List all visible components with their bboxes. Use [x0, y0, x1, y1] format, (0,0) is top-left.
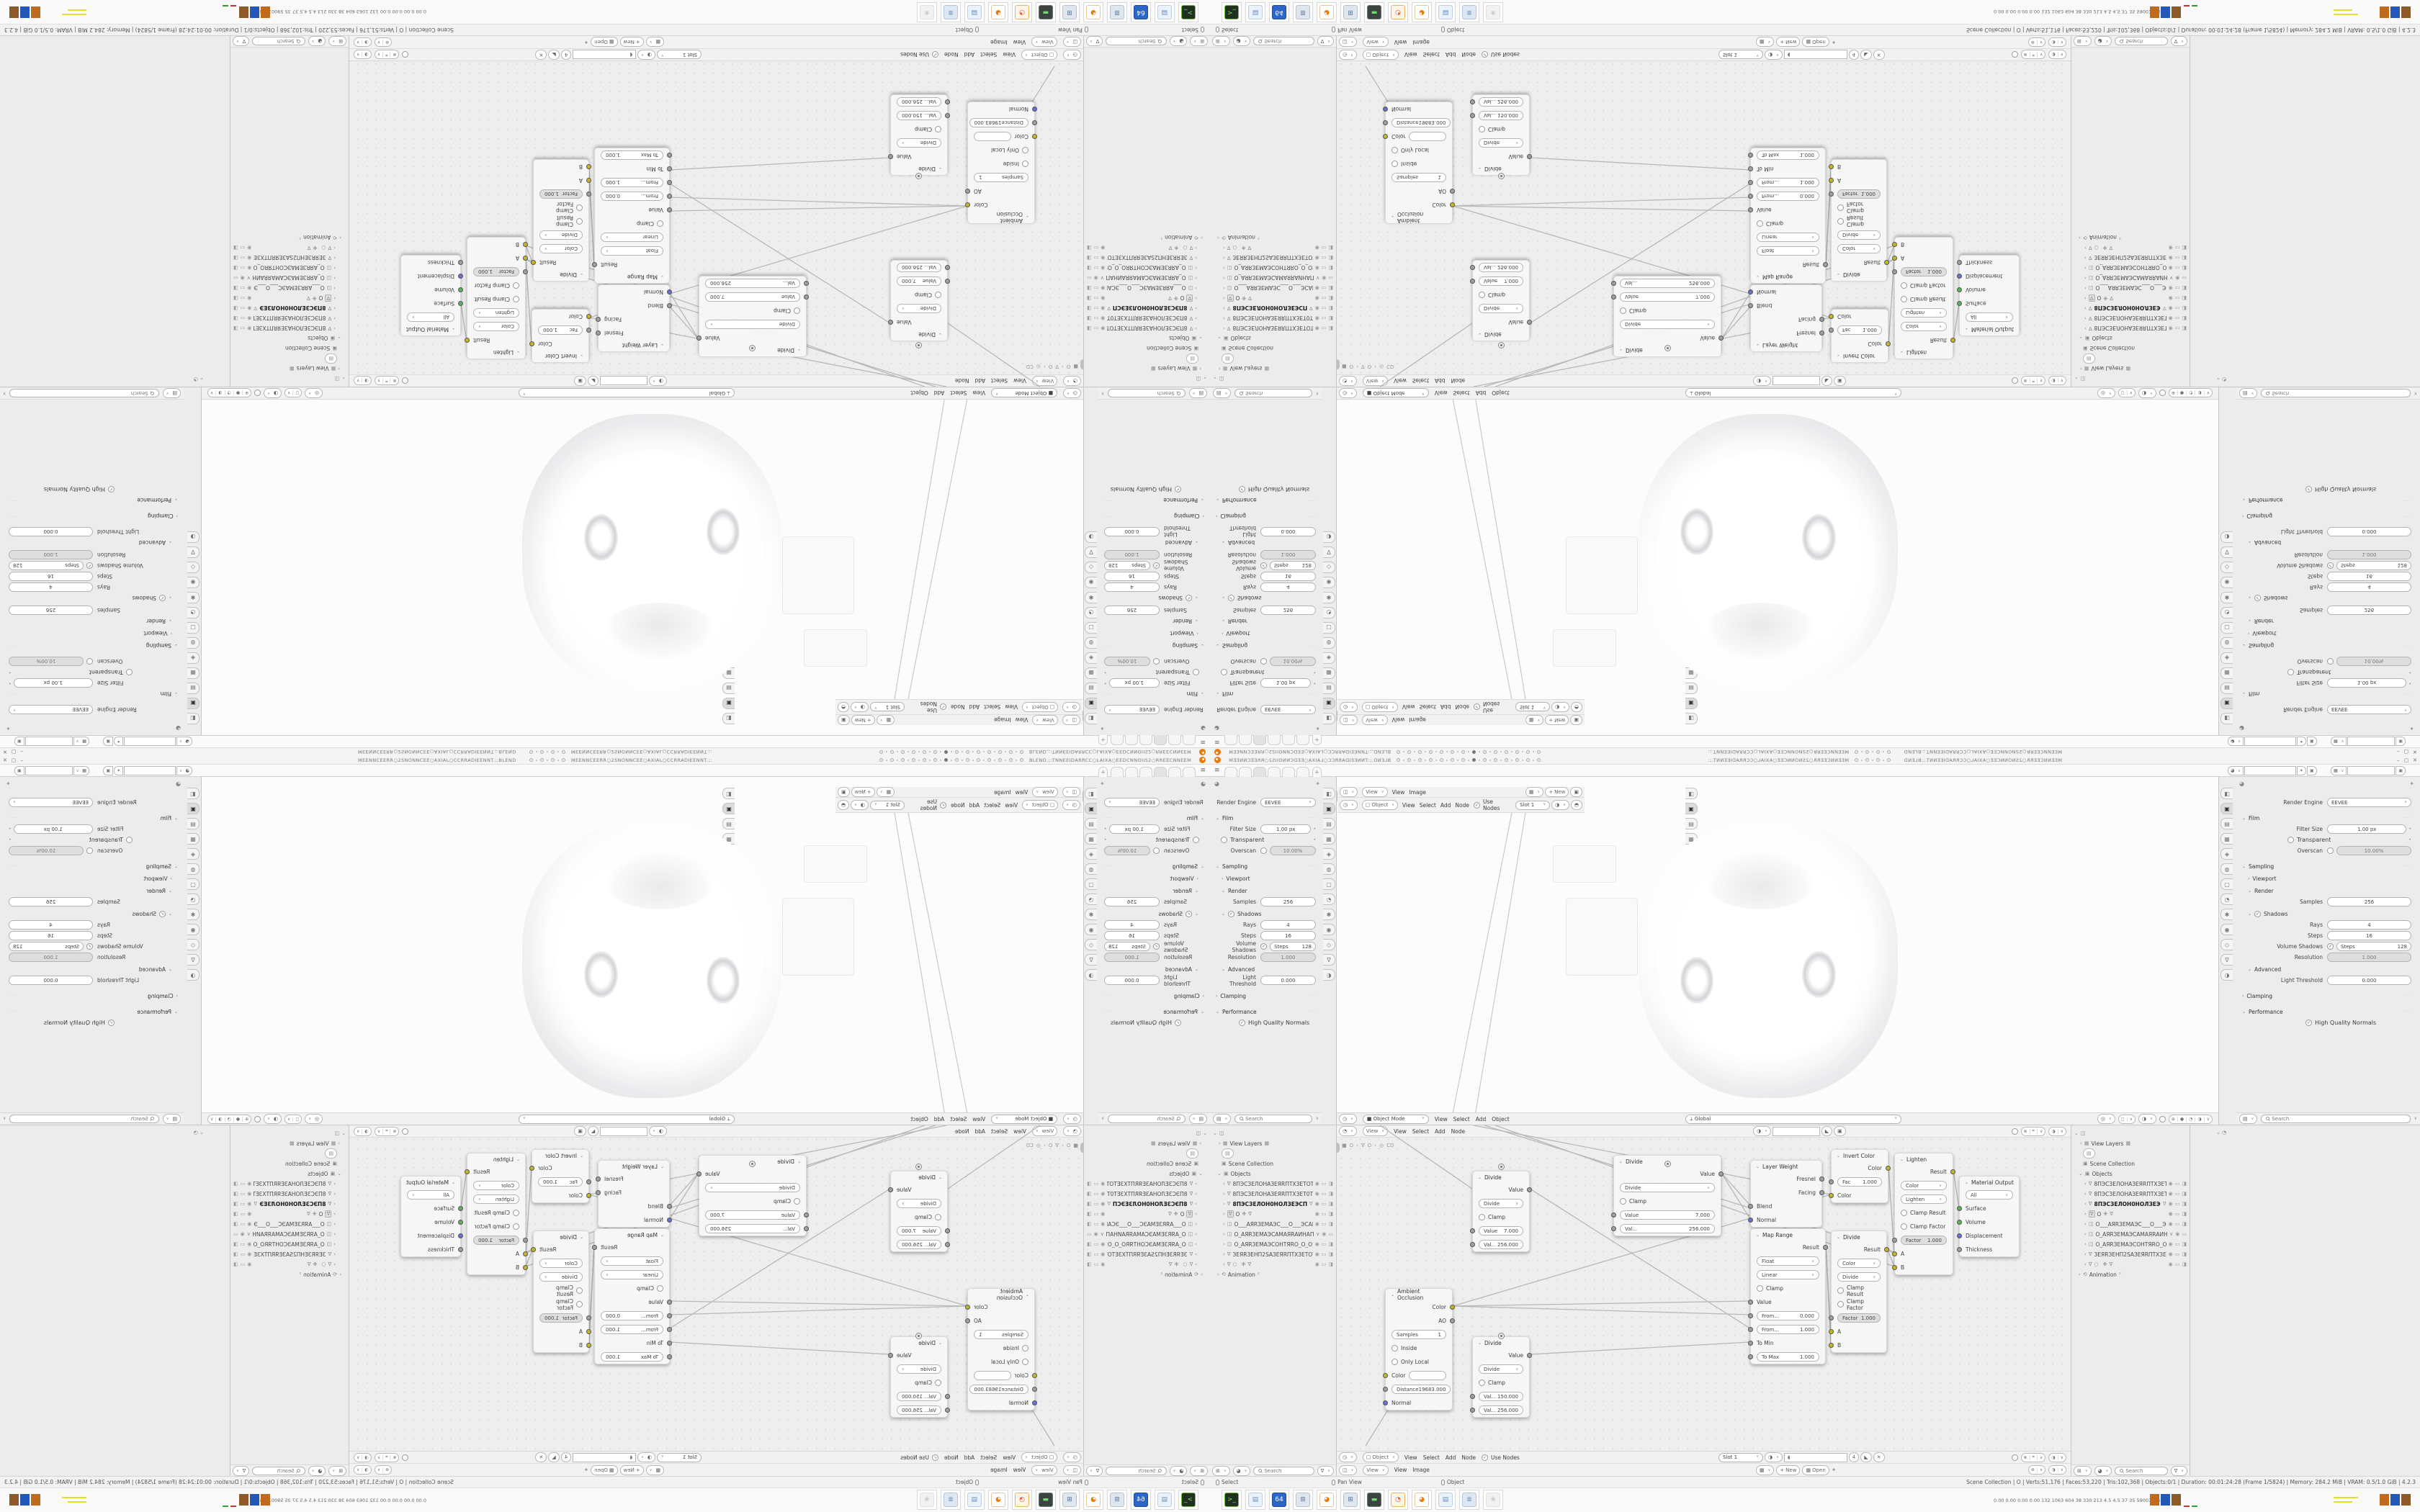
menu-view[interactable]: View [1435, 390, 1448, 397]
properties-tab-icon-3[interactable]: ▦ [187, 667, 200, 679]
node-toggle[interactable]: Clamp Result [1901, 1210, 1946, 1216]
editor-type-icon[interactable]: ◕ [1201, 725, 1206, 732]
node-select[interactable]: Divide∨ [539, 230, 583, 240]
monitor-icon[interactable]: ▭ [1322, 245, 1327, 251]
checkbox[interactable]: ✓ [1175, 1020, 1181, 1026]
value-field-filter-size[interactable]: 1.00 px [2327, 824, 2406, 834]
node-select[interactable]: Divide∨ [897, 304, 941, 313]
app-icon-disabled-app[interactable]: ❀ [917, 1490, 937, 1510]
viewlayer-browse-icon[interactable]: ▦∨ [2331, 737, 2347, 746]
eye-icon[interactable]: ◉ [2169, 1241, 2173, 1247]
node-toggle[interactable]: Clamp Factor [1901, 1223, 1945, 1230]
properties-tab-icon-3[interactable]: ▦ [1085, 667, 1097, 679]
camera-icon[interactable]: ◨ [1087, 255, 1092, 261]
new-image-button[interactable]: + New [1545, 787, 1569, 797]
node-select[interactable]: Divide∨ [1479, 138, 1523, 148]
eye-icon[interactable]: ◉ [247, 1261, 251, 1267]
node-socket-input[interactable] [1829, 1329, 1834, 1334]
node-value-field[interactable]: Value7.000 [897, 1226, 941, 1236]
workspace-tab[interactable] [1296, 767, 1309, 777]
chevron-down-icon[interactable]: ∨ [3, 1116, 6, 1121]
editor-type-dropdown[interactable]: ◫∨ [1340, 715, 1358, 725]
monitor-icon[interactable]: ▭ [241, 265, 246, 271]
restrict-icons[interactable]: ◉▭◨ [1087, 265, 1105, 271]
eye-icon[interactable]: ◉ [247, 1211, 251, 1217]
checkbox[interactable]: ✓ [2305, 486, 2312, 492]
section-header-performance[interactable]: ⌄Performance···· [2236, 495, 2417, 505]
material-users-count[interactable]: 4 [561, 50, 571, 60]
value-field-samples[interactable]: 256 [1104, 897, 1160, 906]
node-title[interactable]: ⌄Map Range [1751, 271, 1825, 283]
node-socket-input[interactable] [1892, 242, 1897, 247]
workspace-dot-icon[interactable] [1537, 758, 1541, 762]
menu-node[interactable]: Node [1455, 802, 1469, 809]
eye-icon[interactable]: ◉ [2169, 305, 2173, 311]
viewlayer-selector[interactable]: ▦∨ ▣ [14, 737, 89, 746]
camera-icon[interactable]: ◨ [1087, 1211, 1092, 1217]
editor-type-dropdown[interactable]: ◫∨ [1062, 715, 1080, 725]
app-icon-scroll-app[interactable]: ≣ [1459, 1490, 1479, 1510]
node-value-field[interactable]: Val...256.000 [897, 1240, 941, 1249]
properties-tab-icon-2[interactable]: ▤ [1323, 818, 1335, 829]
node-socket-input[interactable] [667, 1327, 672, 1332]
node-socket-input[interactable] [667, 1300, 672, 1305]
node-title[interactable]: ⌄Ambient Occlusion [1386, 1289, 1452, 1300]
properties-tab-icon-1[interactable]: ▣ [187, 698, 200, 709]
torus-object[interactable] [522, 821, 781, 1098]
outliner-row[interactable]: ›⟲Animation² [230, 233, 349, 243]
node-toggle[interactable]: Clamp Result [539, 1284, 583, 1297]
node-socket-output[interactable] [596, 1176, 601, 1182]
workspace-dot-icon[interactable] [955, 758, 959, 762]
properties-tab-icon-12[interactable]: ◑ [2220, 969, 2233, 981]
node-socket-input[interactable] [1748, 207, 1753, 212]
camera-icon[interactable]: ◨ [233, 1241, 238, 1247]
eye-icon[interactable]: ◉ [1315, 1221, 1319, 1227]
app-icon-firefox-app[interactable]: ◔ [1012, 1490, 1032, 1510]
new-workspace-button[interactable]: + [1098, 735, 1108, 745]
new-image-button[interactable]: + New [620, 1465, 644, 1475]
node-toggle[interactable]: Inside [1391, 161, 1417, 167]
value-field-samples[interactable]: 256 [1260, 606, 1316, 615]
node-value-field[interactable]: Val...256.000 [897, 97, 941, 107]
properties-tab-icon-0[interactable]: ◧ [1685, 713, 1698, 724]
monitor-icon[interactable]: ▭ [1094, 1221, 1099, 1227]
filter-dropdown[interactable]: ∇∨ [1317, 37, 1334, 47]
chevron-down-icon[interactable]: ∨ [1101, 275, 1104, 281]
node-ambient-occlusion[interactable]: ⌄Ambient OcclusionColorAOSamples1InsideO… [1385, 1288, 1453, 1410]
restrict-icons[interactable]: ◉▭ [2175, 275, 2187, 281]
app-icon-monitor-app[interactable]: ▬ [1036, 1490, 1056, 1510]
node-socket-input[interactable] [667, 303, 672, 308]
restrict-icons[interactable]: ∇◉▭◨ [1309, 305, 1333, 311]
node-value-field[interactable]: Samples1 [1391, 1330, 1446, 1339]
restrict-icons[interactable]: ◉▭◨ [233, 255, 251, 261]
display-mode-dropdown[interactable]: ⊞∨ [1190, 1466, 1208, 1476]
value-field-overscan[interactable]: 10.00% [2336, 657, 2411, 666]
mode-select[interactable]: ■ Object Mode∨ [991, 1115, 1057, 1124]
value-field-filter-size[interactable]: 1.00 px [2327, 678, 2406, 688]
node-value-field[interactable]: Value7.000 [705, 1210, 800, 1220]
value-field-samples[interactable]: 256 [9, 606, 93, 615]
section-header-clamping[interactable]: ›Clamping···· [3, 991, 184, 1002]
node-select[interactable]: Divide∨ [1837, 230, 1881, 240]
checkbox[interactable] [1391, 1345, 1398, 1351]
app-icon-blender2-app[interactable]: ◕ [988, 2, 1008, 22]
camera-icon[interactable]: ◨ [1328, 1251, 1333, 1257]
eye-icon[interactable]: ◉ [247, 325, 251, 331]
workspace-tab[interactable] [1111, 735, 1124, 745]
node-socket-input[interactable] [1748, 1218, 1753, 1223]
reroute-node[interactable] [915, 1164, 922, 1170]
workspace-dot-icon[interactable] [562, 750, 565, 754]
node-lighten[interactable]: ⌄LightenResultColor∨Lighten∨Clamp Result… [1894, 237, 1953, 359]
node-socket-input[interactable] [945, 1228, 950, 1233]
camera-icon[interactable]: ◨ [233, 1181, 238, 1187]
snapping-dropdown[interactable]: ⊗⌗∨ [375, 50, 400, 60]
node-value-field[interactable]: Factor1.000 [1837, 189, 1881, 199]
restrict-icons[interactable]: ◉▭◨ [233, 1191, 251, 1197]
section-header-performance[interactable]: ⌄Performance···· [3, 1007, 184, 1017]
anim-dot-icon[interactable]: • [1104, 827, 1107, 832]
workspace-dot-icon[interactable] [1876, 750, 1880, 754]
outliner-row[interactable]: ›∇8ПЭСЗЕЛОНАЗЕЯRПТХЗЕТ0ТЗЕХТ◉▭◨ [1084, 1189, 1210, 1199]
image-browse-icon[interactable]: ▦∨ [1756, 1465, 1774, 1475]
viewlayer-browse-icon[interactable]: ▦∨ [73, 737, 89, 746]
workspace-tab[interactable] [1239, 767, 1252, 777]
eye-icon[interactable]: ◉ [2169, 325, 2173, 331]
fake-user-shield-icon[interactable]: ◣ [1860, 50, 1871, 60]
outliner-row[interactable]: ›∇○❉∇◉▭◨ [1210, 1259, 1336, 1269]
restrict-icons[interactable]: ◉▭◨ [1087, 255, 1105, 261]
camera-icon[interactable]: ◨ [233, 1221, 238, 1227]
overlays-toggle[interactable]: ◻∨ [284, 389, 302, 398]
node-socket-input[interactable] [945, 113, 950, 118]
properties-tab-icon-8[interactable]: ✱ [187, 909, 200, 920]
workspace-tab[interactable] [1154, 767, 1167, 777]
eye-icon[interactable]: ◉ [1315, 1211, 1319, 1217]
restrict-icons[interactable]: ◉▭◨ [1315, 1181, 1333, 1187]
snapping-dropdown[interactable]: ⊗⌗∨ [2021, 50, 2046, 60]
workspace-dot-icon[interactable] [1407, 758, 1411, 762]
app-icon-firefox-app[interactable]: ◔ [1388, 1490, 1408, 1510]
properties-search[interactable] [1234, 390, 1312, 398]
node-socket-input[interactable] [523, 242, 528, 247]
restrict-icons[interactable]: ◉▭◨ [233, 245, 251, 251]
eye-icon[interactable]: ◉ [1101, 315, 1105, 321]
checkbox[interactable] [1193, 669, 1199, 675]
value-field-resolution[interactable]: 1.000 [1104, 953, 1160, 962]
checkbox[interactable] [1022, 1359, 1028, 1365]
checkbox[interactable] [576, 218, 583, 225]
restrict-icons[interactable]: ◉▭◨ [233, 1221, 251, 1227]
eye-icon[interactable]: ◉ [1315, 305, 1319, 311]
menu-node[interactable]: Node [1455, 704, 1469, 711]
node-toggle[interactable]: Clamp [1479, 1380, 1505, 1386]
fake-user-shield-icon[interactable]: ◣ [1860, 1452, 1871, 1462]
menu-select[interactable]: Select [980, 52, 997, 58]
unlink-icon[interactable]: ✕ [535, 1452, 547, 1462]
workspace-dot-icon[interactable] [1483, 750, 1487, 754]
node-socket-input[interactable] [523, 1238, 528, 1243]
checkbox[interactable] [935, 1380, 941, 1386]
node-socket-output[interactable] [1450, 1305, 1455, 1310]
workspace-dot-icon[interactable] [1515, 758, 1519, 762]
value-field-filter-size[interactable]: 1.00 px [14, 824, 93, 834]
node-select[interactable]: Color∨ [539, 244, 583, 253]
outliner-row[interactable]: ›∇8ПЭСЗЕЛОНАЗЕЯRПТХЗЕТОТЗЕХТ◉▭◨ [1210, 1179, 1336, 1189]
node-toggle[interactable]: Clamp Factor [1837, 202, 1881, 215]
monitor-icon[interactable]: ▭ [233, 1231, 238, 1237]
section-header-render[interactable]: ⌄Render [3, 616, 184, 626]
checkbox[interactable] [1757, 1285, 1763, 1292]
editor-type-icon[interactable]: ◕ [2239, 780, 2244, 787]
restrict-icons[interactable]: ◉▭◨ [1087, 1181, 1105, 1187]
node-toggle[interactable]: Clamp [637, 220, 663, 227]
workspace-dot-icon[interactable] [1461, 758, 1465, 762]
section-header-viewport[interactable]: ›Viewport [3, 628, 184, 639]
outliner-row[interactable]: ›∇8ПЭСЗЕЛОНАЗЕЯRПТХЗЕТ0ТЗЕХТ◉▭◨ [1084, 313, 1210, 323]
chevron-down-icon[interactable]: ∨ [1101, 1116, 1104, 1121]
menu-object[interactable]: Object [1492, 390, 1509, 397]
workspace-dot-icon[interactable] [1855, 758, 1858, 762]
filter-dropdown[interactable]: ∇∨ [2171, 1466, 2187, 1476]
editor-type-dropdown[interactable]: ◷∨ [1063, 50, 1081, 60]
funnel-icon[interactable]: ∇ [254, 1201, 257, 1207]
workspace-dot-icon[interactable] [923, 758, 926, 762]
node-value-field[interactable]: To Max1.000 [1757, 1352, 1819, 1362]
node-socket-input[interactable] [458, 301, 463, 306]
camera-icon[interactable]: ◨ [233, 1191, 238, 1197]
node-socket-input[interactable] [1748, 194, 1753, 199]
outliner-row[interactable]: ▣Scene Collection [1084, 1158, 1210, 1169]
chevron-down-icon[interactable]: ∨ [1101, 1231, 1104, 1237]
node-value-field[interactable]: Factor1.000 [473, 1236, 519, 1245]
node-ambient-occlusion[interactable]: ⌄Ambient OcclusionColorAOSamples1InsideO… [967, 102, 1035, 224]
material-name-field[interactable]: ◖ [573, 1453, 636, 1462]
value-field-resolution[interactable]: 1.000 [1260, 953, 1316, 962]
restrict-icons[interactable]: ◉▭◨ [2169, 295, 2187, 301]
section-header-sampling[interactable]: ⌄Sampling···· [3, 640, 184, 651]
slot-select[interactable]: Slot 1∨ [657, 50, 702, 60]
restrict-icons[interactable]: ◉▭◨ [1315, 1221, 1333, 1227]
film-icon[interactable]: ▤ [2083, 354, 2095, 364]
outliner-row[interactable]: ›∇ЗЕЯRЗЕНП2SАЗЕЯRПТХЗЕТОТЗЕХ◉▭◨ [1210, 253, 1336, 263]
display-mode-dropdown[interactable]: ⊞∨ [2074, 37, 2092, 47]
checkbox[interactable] [513, 1210, 519, 1216]
value-field-light-threshold[interactable]: 0.000 [1260, 527, 1316, 536]
value-field-overscan[interactable]: 10.00% [2336, 846, 2411, 855]
properties-tab-icon-4[interactable]: ◈ [1323, 848, 1335, 860]
properties-tab-icon-4[interactable]: ◈ [1085, 848, 1097, 860]
node-toggle[interactable]: Inside [1391, 1345, 1417, 1351]
camera-icon[interactable]: ◨ [1087, 1261, 1092, 1267]
camera-icon[interactable]: ◨ [233, 1251, 238, 1257]
node-socket-input[interactable] [1470, 1408, 1475, 1413]
node-socket-output[interactable] [1450, 189, 1455, 194]
camera-icon[interactable]: ◨ [1328, 1241, 1333, 1247]
workspace-dot-icon[interactable] [1009, 750, 1013, 754]
monitor-icon[interactable]: ▭ [1094, 1251, 1099, 1257]
restrict-icons[interactable]: ◉▭ [233, 1231, 245, 1237]
monitor-icon[interactable]: ▭ [2175, 1221, 2180, 1227]
checkbox[interactable] [576, 1287, 583, 1294]
menu-view[interactable]: View [1005, 802, 1018, 809]
checkbox[interactable] [1901, 296, 1907, 302]
node-socket-output[interactable] [529, 341, 534, 346]
section-header-sampling[interactable]: ⌄Sampling···· [2236, 640, 2417, 651]
properties-tab-icon-4[interactable]: ◈ [187, 652, 200, 664]
outliner-row[interactable]: ›∇○❉∇◉▭◨ [2071, 1259, 2190, 1269]
color-field[interactable] [1409, 132, 1446, 141]
node-socket-input[interactable] [1032, 1387, 1037, 1392]
pin-icon[interactable]: ✦ [114, 766, 123, 775]
properties-tab-icon-5[interactable]: ◍ [1085, 863, 1097, 875]
collapse-icon[interactable]: ⌄ [452, 328, 455, 333]
viewlayer-selector[interactable]: ▦∨ ▣ [2331, 737, 2406, 746]
app-icon-notes2-app[interactable]: ▤ [1435, 1490, 1456, 1510]
section-header-render[interactable]: ⌄Render [1210, 886, 1322, 896]
node-socket-output[interactable] [1527, 1187, 1532, 1192]
eye-icon[interactable]: ◉ [241, 1231, 245, 1237]
monitor-icon[interactable]: ▭ [1322, 1191, 1327, 1197]
collapse-icon[interactable]: ⌄ [1026, 215, 1029, 220]
node-socket-input[interactable] [667, 289, 672, 294]
scene-name-field[interactable] [2244, 766, 2296, 775]
orientation-select[interactable]: ⟂ Global∨ [519, 389, 735, 398]
node-select[interactable]: Lighten∨ [473, 1194, 519, 1204]
properties-tab-icon-5[interactable]: ◍ [1085, 637, 1097, 649]
app-icon-notes-app[interactable]: ▤ [1155, 1490, 1175, 1510]
slot-select[interactable]: Slot 1∨ [657, 1453, 702, 1462]
section-header-shadows[interactable]: ⌄✓Shadows [3, 909, 184, 919]
node-socket-input[interactable] [1470, 279, 1475, 284]
restrict-icons[interactable]: ◉▭◨ [233, 325, 251, 331]
outliner-row[interactable]: ▤ [230, 1148, 349, 1158]
eye-icon[interactable]: ◉ [2175, 1231, 2179, 1237]
image-browse-icon[interactable]: ▦∨ [877, 787, 895, 797]
node-socket-output[interactable] [1884, 1247, 1889, 1252]
outliner-row[interactable]: ›∇8ПЭСЗЕЛОН0НОЛЗЕЭСП8∇◉▭◨ [1084, 1199, 1210, 1209]
node-select[interactable]: Color∨ [539, 1259, 583, 1268]
properties-tab-icon-8[interactable]: ✱ [2220, 592, 2233, 603]
snap-toggle[interactable] [402, 1454, 408, 1461]
node-socket-input[interactable] [1470, 265, 1475, 270]
shader-type-dropdown[interactable]: ▢ Object∨ [1021, 1452, 1057, 1462]
material-browse-icon[interactable]: ◑∨ [637, 1452, 655, 1462]
section-header-shadows[interactable]: ⌄✓Shadows [1210, 593, 1322, 603]
app-icon-blender-app[interactable]: ◕ [1317, 2, 1337, 22]
chevron-down-icon[interactable]: ∨ [2414, 1116, 2417, 1121]
display-mode-dropdown[interactable]: ⊞∨ [1190, 37, 1208, 47]
anim-dot-icon[interactable]: • [1104, 680, 1107, 685]
node-divide-2[interactable]: ⌄DivideValueDivide∨ClampVal...150.000Val… [1472, 1336, 1530, 1418]
node-socket-input[interactable] [1748, 289, 1753, 294]
node-socket-input[interactable] [1829, 1315, 1834, 1320]
outliner-search[interactable] [2115, 1467, 2167, 1475]
menu-add[interactable]: Add [1476, 1116, 1487, 1122]
properties-tab-icon-6[interactable]: ▢ [2220, 622, 2233, 634]
value-field-filter-size[interactable]: 1.00 px [14, 678, 93, 688]
monitor-icon[interactable]: ▭ [241, 305, 246, 311]
properties-tab-icon-6[interactable]: ▢ [1085, 622, 1097, 634]
properties-tab-icon-10[interactable]: ◇ [2220, 562, 2233, 573]
section-header-film[interactable]: ⌄Film···· [3, 813, 184, 824]
app-icon-disk-64-app[interactable]: 64 [1269, 2, 1289, 22]
monitor-icon[interactable]: ▭ [1322, 1241, 1327, 1247]
section-header-viewport[interactable]: ›Viewport [1210, 628, 1322, 639]
material-name-field[interactable]: ◓ [838, 800, 849, 810]
monitor-icon[interactable]: ▭ [1322, 1211, 1327, 1217]
checkbox[interactable] [657, 1285, 663, 1292]
node-title[interactable]: ⌄Layer Weight [599, 1161, 669, 1172]
anim-dot-icon[interactable]: • [1104, 837, 1107, 842]
search-input[interactable] [1264, 39, 1309, 45]
node-socket-input[interactable] [1829, 1193, 1834, 1198]
anim-dot-icon[interactable]: • [1104, 670, 1107, 675]
eye-icon[interactable]: ◉ [2169, 1201, 2173, 1207]
pin-icon[interactable]: ✦ [2409, 725, 2414, 732]
node-toggle[interactable]: Clamp [1479, 126, 1505, 132]
camera-icon[interactable]: ◨ [1328, 255, 1333, 261]
eye-icon[interactable]: ◉ [2169, 1251, 2173, 1257]
menu-add[interactable]: Add [964, 52, 975, 58]
pin-icon[interactable]: ✦ [1832, 39, 1837, 45]
section-header-render[interactable]: ⌄Render [2236, 886, 2417, 896]
eye-icon[interactable]: ◉ [1101, 1181, 1105, 1187]
properties-tab-icon-11[interactable]: ∇ [2220, 546, 2233, 558]
value-field-volume-shadows[interactable]: Steps128 [9, 561, 84, 570]
filter-dropdown[interactable]: ▤∨ [1189, 389, 1207, 399]
node-socket-output[interactable] [965, 1318, 970, 1323]
monitor-icon[interactable]: ▭ [241, 1181, 246, 1187]
node-value-field[interactable]: From...1.000 [1757, 178, 1819, 187]
restrict-icons[interactable]: ◉▭◨ [1087, 245, 1105, 251]
node-select[interactable]: Divide∨ [897, 138, 941, 148]
search-input[interactable] [2125, 1468, 2162, 1474]
checkbox[interactable] [126, 669, 133, 675]
eye-icon[interactable]: ◉ [247, 295, 251, 301]
eye-icon[interactable]: ◉ [247, 1181, 251, 1187]
filter-id-dropdown[interactable]: ◕∨ [2094, 37, 2112, 47]
node-socket-input[interactable] [945, 279, 950, 284]
camera-icon[interactable]: ◨ [1087, 245, 1092, 251]
node-socket-input[interactable] [1957, 301, 1962, 306]
node-toggle[interactable]: Inside [1003, 1345, 1028, 1351]
node-material-output[interactable]: ⌄Material OutputAll∨SurfaceVolumeDisplac… [1959, 1176, 2020, 1257]
search-input[interactable] [1111, 39, 1155, 45]
workspace-tab[interactable] [1183, 735, 1196, 745]
restrict-icons[interactable]: ◉▭◨ [2169, 1221, 2187, 1227]
eye-icon[interactable]: ◉ [241, 275, 245, 281]
outliner-row[interactable]: ›◫O_АЯRЗЕМАЭСАМАЯRАИНАП_O∨◉▭ [1084, 273, 1210, 283]
menu-select[interactable]: Select [950, 390, 967, 397]
properties-tab-icon-2[interactable]: ▤ [1085, 818, 1097, 829]
workspace-dot-icon[interactable] [966, 758, 969, 762]
section-header-film[interactable]: ⌄Film···· [1098, 813, 1210, 824]
camera-icon[interactable]: ◨ [2182, 295, 2187, 301]
outliner-row[interactable]: ⌄◫ [1210, 1128, 1336, 1138]
node-toggle[interactable]: Clamp [1757, 220, 1783, 227]
eye-icon[interactable]: ◉ [2169, 265, 2173, 271]
restrict-icons[interactable]: ◉▭◨ [1315, 1241, 1333, 1247]
workspace-dot-icon[interactable] [1537, 750, 1541, 754]
new-workspace-button[interactable]: + [1098, 767, 1108, 777]
outliner-row[interactable]: ›◫O_АЯRЗЕМАЭСОНТЯRО_O_ОЯRТН◉▭◨ [1084, 1239, 1210, 1249]
outliner-row[interactable]: ›⟲Animation² [2071, 1269, 2190, 1279]
properties-tab-icon-7[interactable]: ◔ [187, 894, 200, 905]
node-socket-output[interactable] [1450, 202, 1455, 207]
